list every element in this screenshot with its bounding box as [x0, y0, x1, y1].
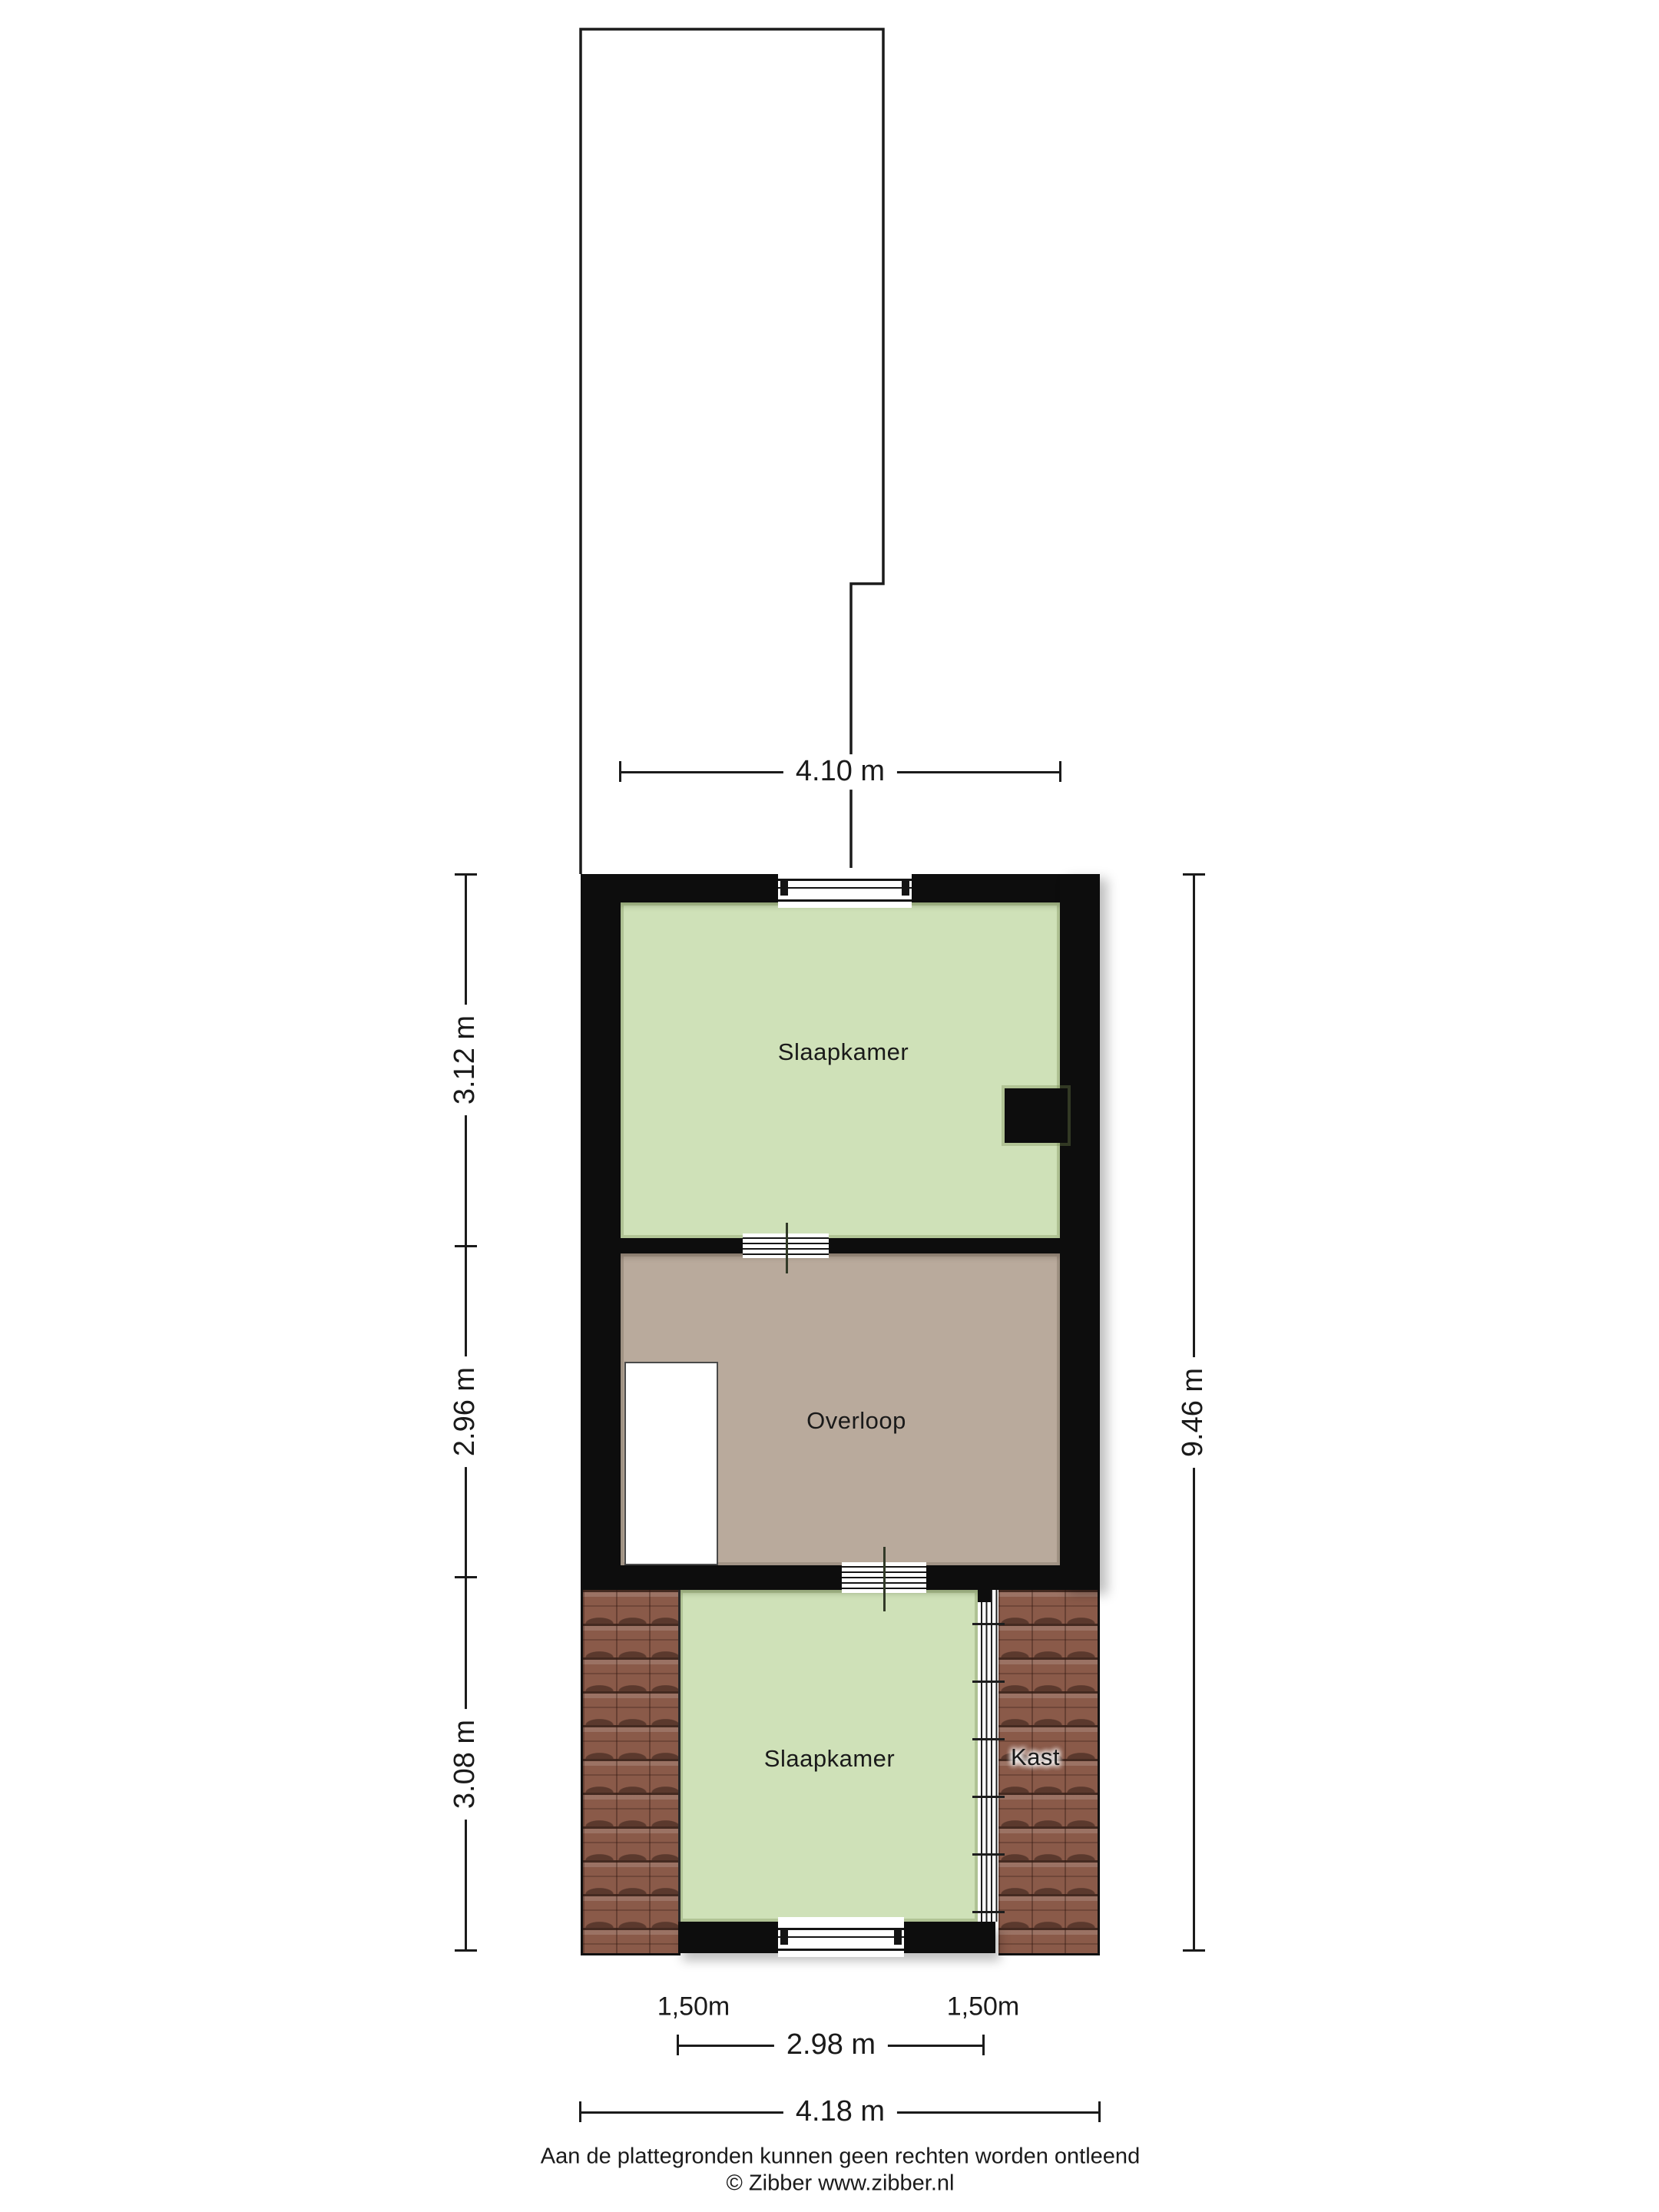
dim-label-left-middle: 2.96 m [448, 1356, 483, 1467]
knee-wall-label-right: 1,50m [947, 1992, 1020, 2022]
roof-tiles-right [998, 1590, 1100, 1955]
staircase [624, 1362, 718, 1565]
lower-floor-outline [581, 29, 883, 874]
dim-label-bottom-total-width: 4.18 m [783, 2094, 897, 2130]
window-glass-icon [778, 879, 912, 902]
dim-tick [1183, 873, 1205, 876]
knee-rung [972, 1623, 1005, 1625]
dim-label-top-width: 4.10 m [783, 754, 897, 790]
dim-tick [1059, 761, 1061, 782]
window-glass-icon [778, 1928, 904, 1951]
room-label-bedroom-bottom: Slaapkamer [764, 1745, 895, 1773]
knee-rung [972, 1681, 1005, 1683]
room-label-bedroom-top: Slaapkamer [778, 1038, 909, 1066]
dim-label-right-total: 9.46 m [1176, 1357, 1211, 1468]
knee-wall-label-left: 1,50m [657, 1992, 730, 2022]
window-line [778, 887, 912, 889]
window-cap [894, 1929, 902, 1945]
dim-label-left-top: 3.12 m [448, 1005, 483, 1115]
window-top [778, 868, 912, 908]
knee-wall-line-right [981, 1590, 998, 1922]
knee-wall-line-left [678, 1590, 680, 1922]
window-bottom [778, 1917, 904, 1957]
dim-tick [455, 873, 477, 876]
wall-between-bedroom-landing [621, 1238, 1060, 1253]
knee-rung [972, 1853, 1005, 1856]
dim-tick [1183, 1949, 1205, 1952]
dim-tick [455, 1245, 477, 1247]
door-line-bottom [883, 1547, 886, 1611]
window-cap [902, 880, 909, 896]
knee-rung [972, 1796, 1005, 1798]
wall-between-landing-bottom [581, 1565, 1100, 1590]
dim-tick [619, 761, 621, 782]
window-cap [780, 880, 788, 896]
dim-tick [1098, 2101, 1101, 2122]
room-label-closet: Kast [1011, 1743, 1060, 1771]
dim-label-left-bottom: 3.08 m [448, 1709, 483, 1820]
dim-tick [982, 2035, 985, 2055]
knee-rung [972, 1911, 1005, 1913]
door-line-top [786, 1223, 788, 1273]
dim-label-bottom-room-width: 2.98 m [774, 2028, 888, 2063]
dim-tick [579, 2101, 581, 2122]
window-cap [780, 1929, 788, 1945]
window-line [778, 1936, 904, 1938]
room-bedroom-top [621, 902, 1060, 1238]
chimney-block [1005, 1088, 1068, 1143]
dim-tick [455, 1576, 477, 1578]
wall-stub [978, 1590, 991, 1602]
wall-left [581, 874, 621, 1590]
dim-tick [677, 2035, 679, 2055]
dim-tick [455, 1949, 477, 1952]
room-label-landing: Overloop [806, 1407, 906, 1435]
footer-copyright: © Zibber www.zibber.nl [727, 2171, 955, 2197]
floorplan-page: Slaapkamer Overloop Slaapkamer Kast 4.10… [0, 0, 1659, 2212]
knee-rung [972, 1738, 1005, 1740]
footer-disclaimer: Aan de plattegronden kunnen geen rechten… [541, 2144, 1140, 2170]
wall-right [1060, 874, 1100, 1590]
roof-tiles-left [581, 1590, 680, 1955]
